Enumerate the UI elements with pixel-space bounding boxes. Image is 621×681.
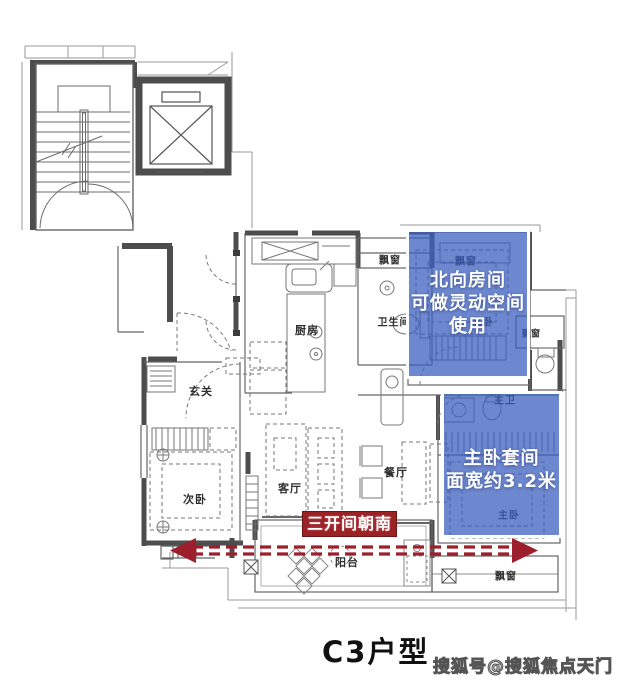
south-span-arrow <box>168 537 540 571</box>
arrowhead-left <box>170 538 196 563</box>
north-room-highlight: 北向房间 可做灵动空间 使用 <box>406 229 530 379</box>
north-room-note-line2: 可做灵动空间 <box>409 292 527 315</box>
elevator-icon <box>150 92 212 172</box>
master-suite-note-line1: 主卧套间 <box>444 447 559 470</box>
watermark-text: 搜狐号@搜狐焦点天门站 <box>433 652 621 681</box>
elevator-shaft-wall <box>139 80 228 172</box>
window-left <box>141 425 147 478</box>
bay-window-label-top: 飘窗 <box>379 252 401 267</box>
room-label-second-bedroom: 次卧 <box>183 491 207 507</box>
room-label-living-room: 客厅 <box>278 480 302 496</box>
north-room-note-line3: 使用 <box>409 315 527 338</box>
room-label-kitchen: 厨房 <box>295 322 319 338</box>
master-suite-highlight: 主卧套间 面宽约3.2米 <box>441 391 562 538</box>
living-room-furniture <box>266 424 342 516</box>
stairs-icon <box>36 64 133 230</box>
floorplan-title: C3户型 <box>322 629 429 671</box>
master-suite-note-line2: 面宽约3.2米 <box>444 470 559 493</box>
north-room-note-line1: 北向房间 <box>409 269 527 292</box>
double-headed-arrow-icon <box>168 537 540 567</box>
arrowhead-right <box>512 538 538 563</box>
room-label-dining-room: 餐厅 <box>384 464 408 480</box>
south-facing-banner: 三开间朝南 <box>302 511 397 537</box>
room-label-entry: 玄关 <box>189 383 213 399</box>
floorplan-page: 玄关 厨房 卫生间 次卧 客厅 餐厅 阳台 飘窗 飘窗 飘窗 飘窗 北卧 主卫 … <box>0 0 621 681</box>
toilet-icon <box>536 355 554 373</box>
